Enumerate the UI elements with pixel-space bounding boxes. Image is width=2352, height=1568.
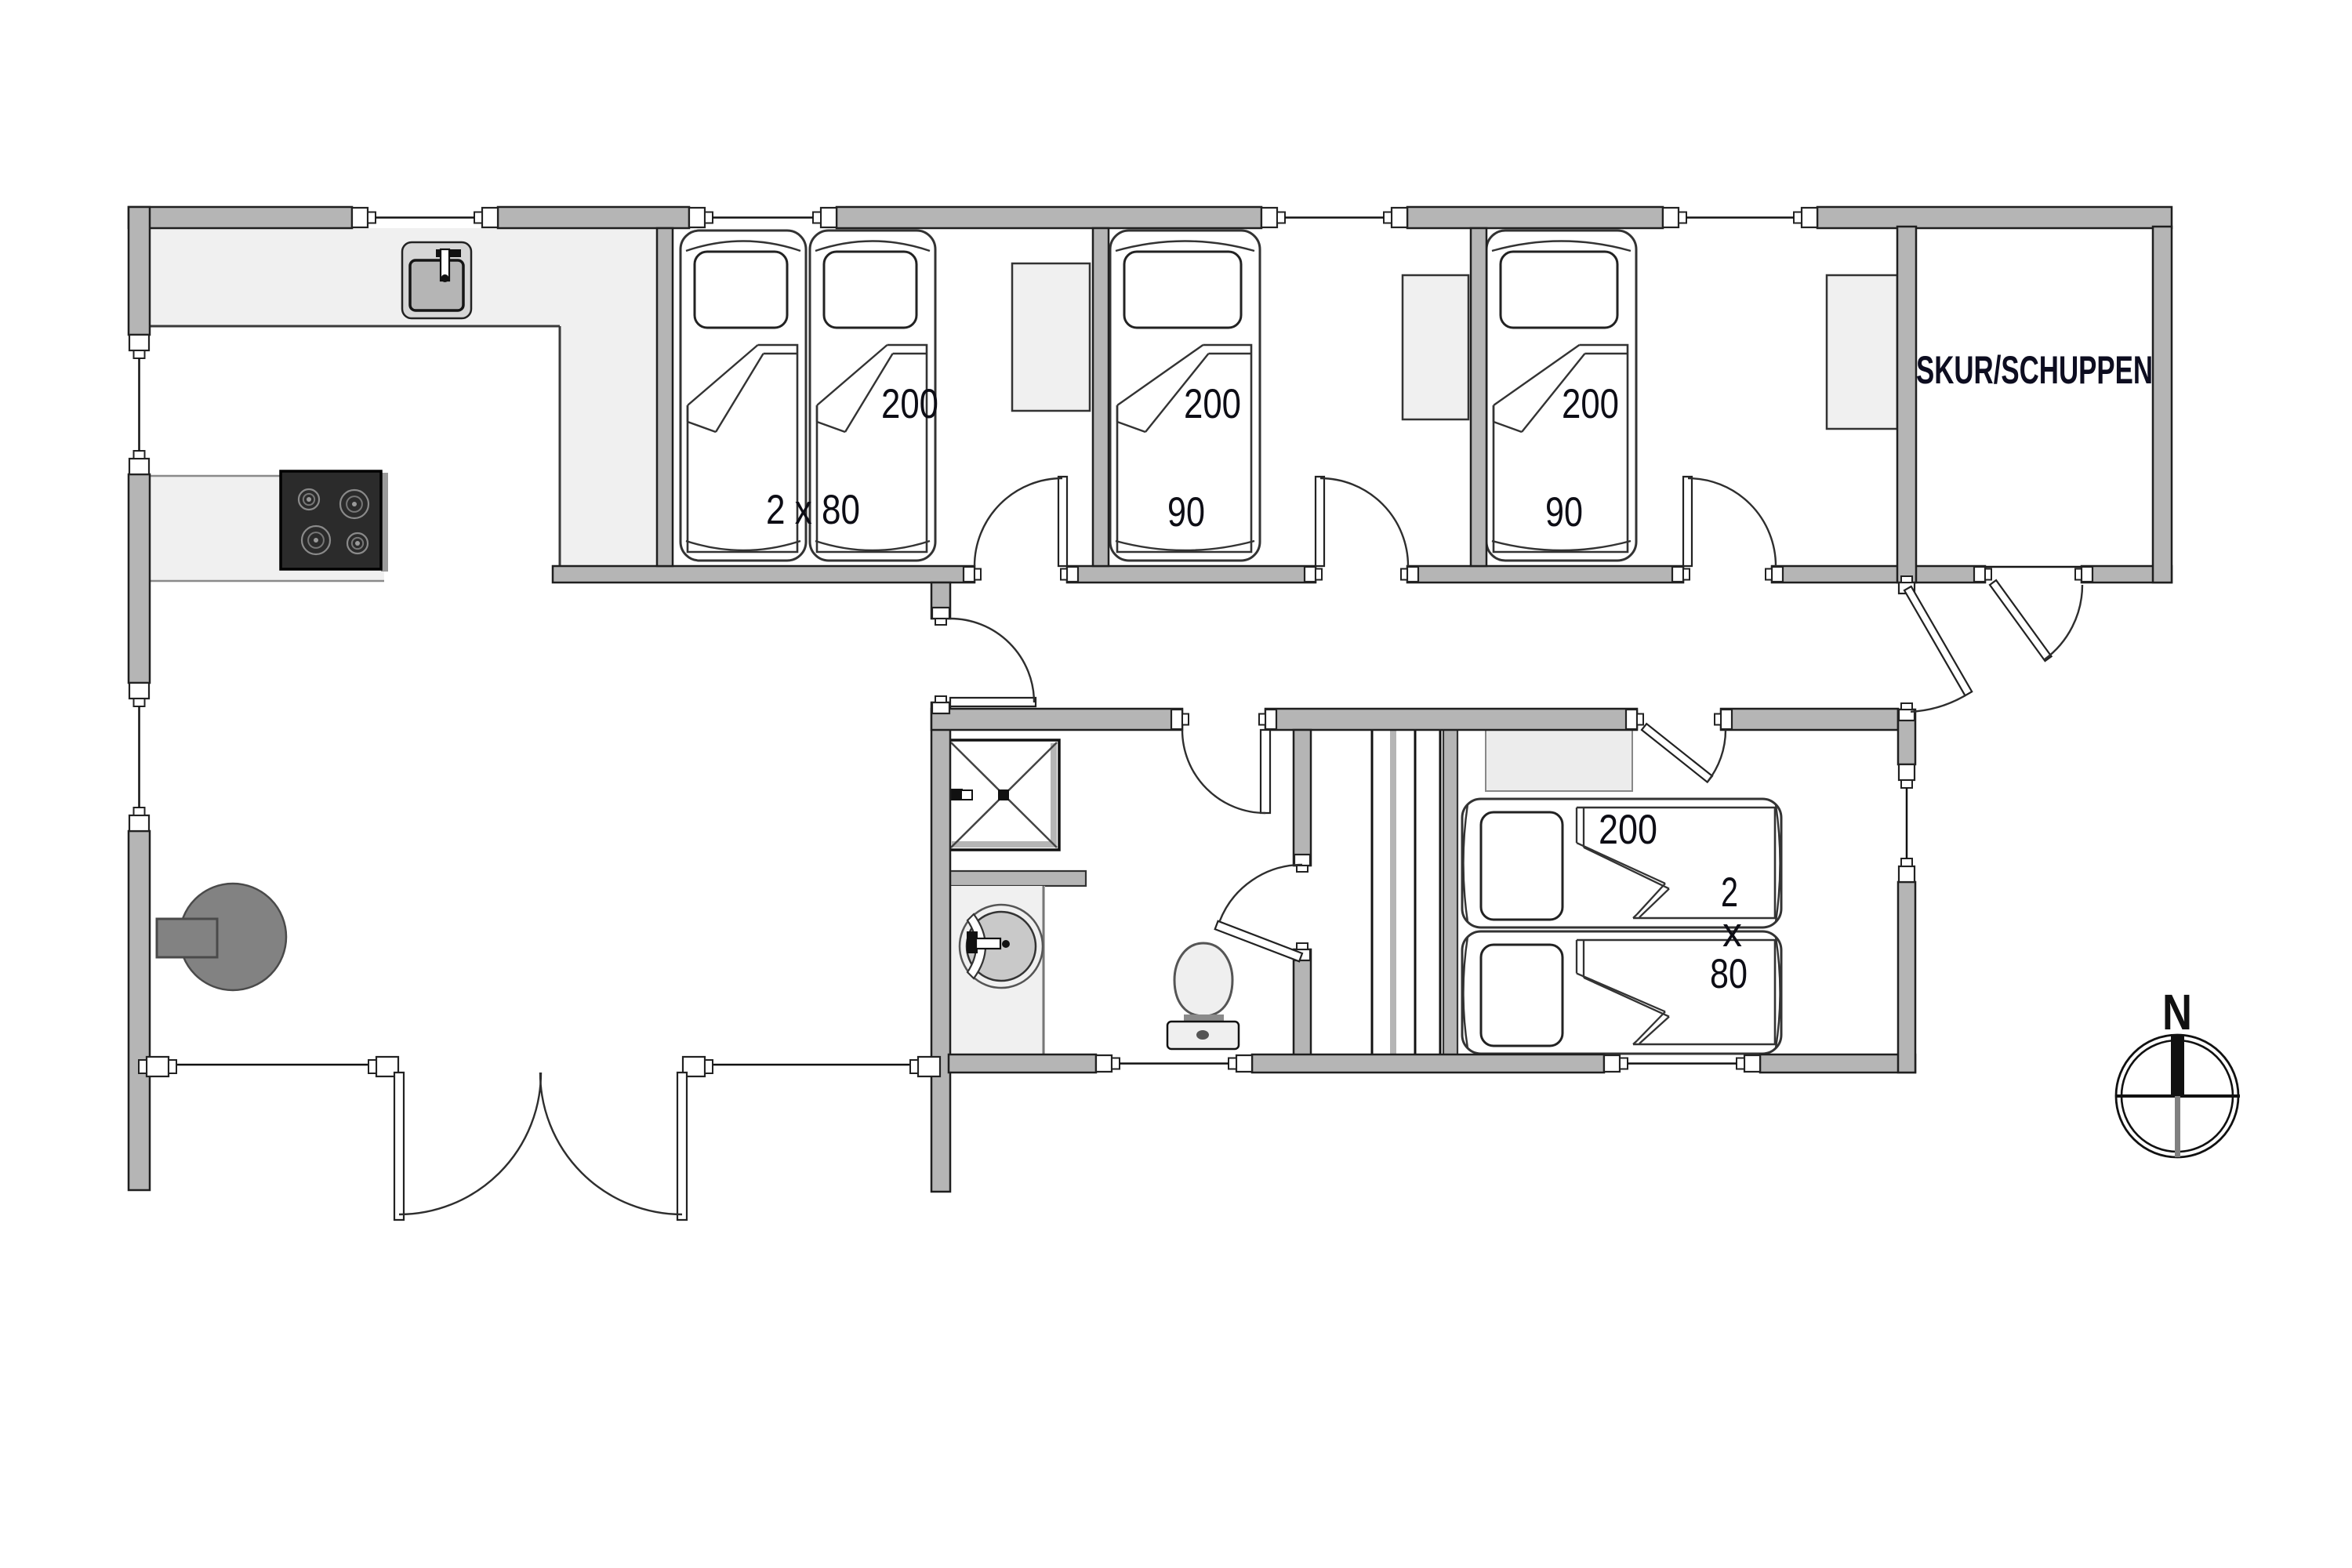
svg-text:80: 80: [1710, 951, 1748, 997]
svg-text:200: 200: [1599, 807, 1657, 853]
svg-text:SKUR/SCHUPPEN: SKUR/SCHUPPEN: [1916, 348, 2153, 392]
svg-text:200: 200: [1562, 381, 1619, 427]
svg-text:90: 90: [1167, 489, 1205, 535]
svg-text:2 x 80: 2 x 80: [766, 487, 860, 533]
svg-text:N: N: [2162, 984, 2192, 1040]
svg-text:90: 90: [1545, 489, 1583, 535]
svg-text:200: 200: [1184, 381, 1241, 427]
svg-text:x: x: [1722, 909, 1742, 956]
svg-text:200: 200: [881, 381, 938, 427]
